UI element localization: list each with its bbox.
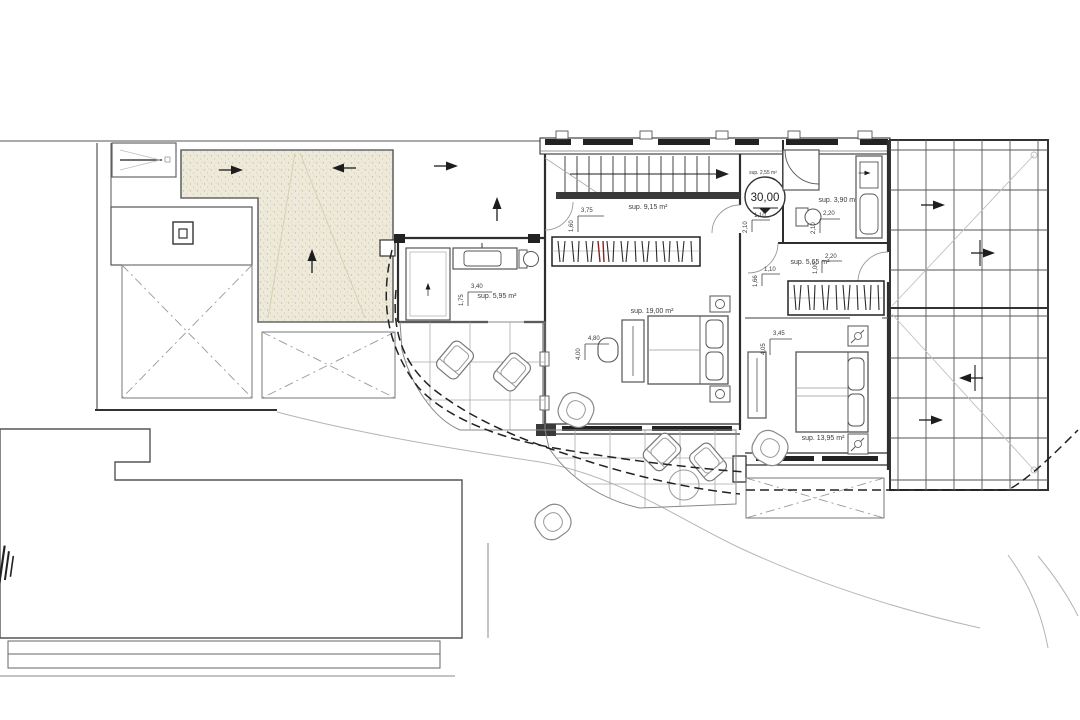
floor-plan-canvas: sup. 2,55 m² 30,00 sup. 9,15 m² sup. 19,… [0, 0, 1080, 720]
desk-master [598, 320, 644, 382]
skylight-icon [112, 143, 176, 177]
dim-text: 1,75 [459, 294, 465, 306]
floor-plan-page: sup. 2,55 m² 30,00 sup. 9,15 m² sup. 19,… [0, 0, 1080, 720]
room-label-dressing: sup. 9,15 m² [629, 204, 669, 211]
room-label-bath2: sup. 3,90 m² [819, 197, 859, 204]
room-label-hall: sup. 5,65 m² [791, 259, 831, 266]
armchair-icon [747, 426, 792, 471]
dim-text: 1,10 [754, 213, 766, 219]
level-marker: sup. 2,55 m² 30,00 [745, 170, 785, 217]
lounge-chair-icon [491, 351, 533, 394]
dim-text: 3,45 [773, 331, 785, 337]
sink-icon [860, 194, 878, 234]
bed-bedroom2-icon [796, 352, 868, 432]
dim-text: 4,80 [588, 336, 600, 342]
level-area-label: sup. 2,55 m² [749, 170, 777, 176]
terrace-pillar [733, 456, 746, 482]
room-bathroom-1: sup. 5,95 m² [406, 243, 539, 320]
lounge-chair-icon [641, 431, 683, 473]
dim-text: 3,40 [471, 284, 483, 290]
dim-dressing: 3,75 1,60 [569, 208, 604, 232]
pillow-icon [848, 394, 864, 426]
dim-text: 2,20 [823, 211, 835, 217]
lounge-chair-icon [687, 441, 729, 484]
dim-bedroom2: 3,45 4,05 [761, 331, 792, 355]
room-label-master: sup. 19,00 m² [631, 308, 674, 315]
dim-text: 1,60 [569, 220, 575, 232]
terrain-contour [277, 412, 980, 628]
room-master-bedroom: sup. 19,00 m² [554, 296, 730, 432]
dim-text: 2,20 [825, 254, 837, 260]
plant-room [111, 207, 252, 265]
chimney-icon [380, 240, 395, 256]
shelf-icon [860, 162, 878, 188]
wardrobe-dressing [552, 237, 700, 266]
stair-direction-arrow-icon [716, 169, 729, 179]
dim-text: 4,00 [576, 348, 582, 360]
void-box-left [122, 265, 252, 398]
dim-text: 2,10 [743, 221, 749, 233]
armchair-icon [554, 388, 598, 431]
wall-pillar [528, 234, 540, 243]
terrace-west [400, 322, 545, 430]
pillow-icon [706, 352, 723, 380]
dim-text: 1,00 [813, 262, 819, 274]
slope-arrow-icon [434, 162, 458, 171]
dim-text: 4,05 [761, 343, 767, 355]
roof-terrace-east [890, 140, 1048, 490]
chimney-icon [173, 222, 193, 244]
void-box-center [262, 332, 395, 398]
level-value: 30,00 [751, 192, 780, 204]
dim-text: 1,66 [753, 275, 759, 287]
lower-terrace-outline [0, 429, 462, 638]
slope-arrow-icon [493, 197, 502, 221]
flat-roof-west [434, 162, 502, 222]
room-label-bedroom2: sup. 13,95 m² [802, 435, 845, 442]
dim-hall-a: 1,10 1,66 [753, 267, 780, 287]
void-box-bedroom2 [746, 478, 884, 518]
pillow-icon [706, 320, 723, 348]
terrace-south [530, 430, 736, 545]
wall-pillar [394, 234, 405, 243]
stairs [545, 156, 740, 199]
wardrobe-hall [788, 281, 884, 315]
room-label-bath1: sup. 5,95 m² [478, 293, 518, 300]
dim-text: 2,10 [811, 222, 817, 234]
pillow-icon [848, 358, 864, 390]
section-marker-icon [0, 546, 15, 585]
sink-icon [464, 251, 501, 266]
desk-chair-icon [598, 338, 618, 362]
room-hall: sup. 5,65 m² [788, 259, 884, 315]
room-bathroom-2: sup. 3,90 m² [783, 150, 882, 238]
retaining-wall-lower [8, 654, 440, 668]
retaining-wall-upper [8, 641, 440, 654]
dim-text: 3,75 [581, 208, 593, 214]
dim-text: 1,10 [764, 267, 776, 273]
room-dressing: sup. 9,15 m² [552, 204, 700, 266]
armchair-icon [530, 499, 576, 545]
north-window-band [540, 131, 890, 154]
